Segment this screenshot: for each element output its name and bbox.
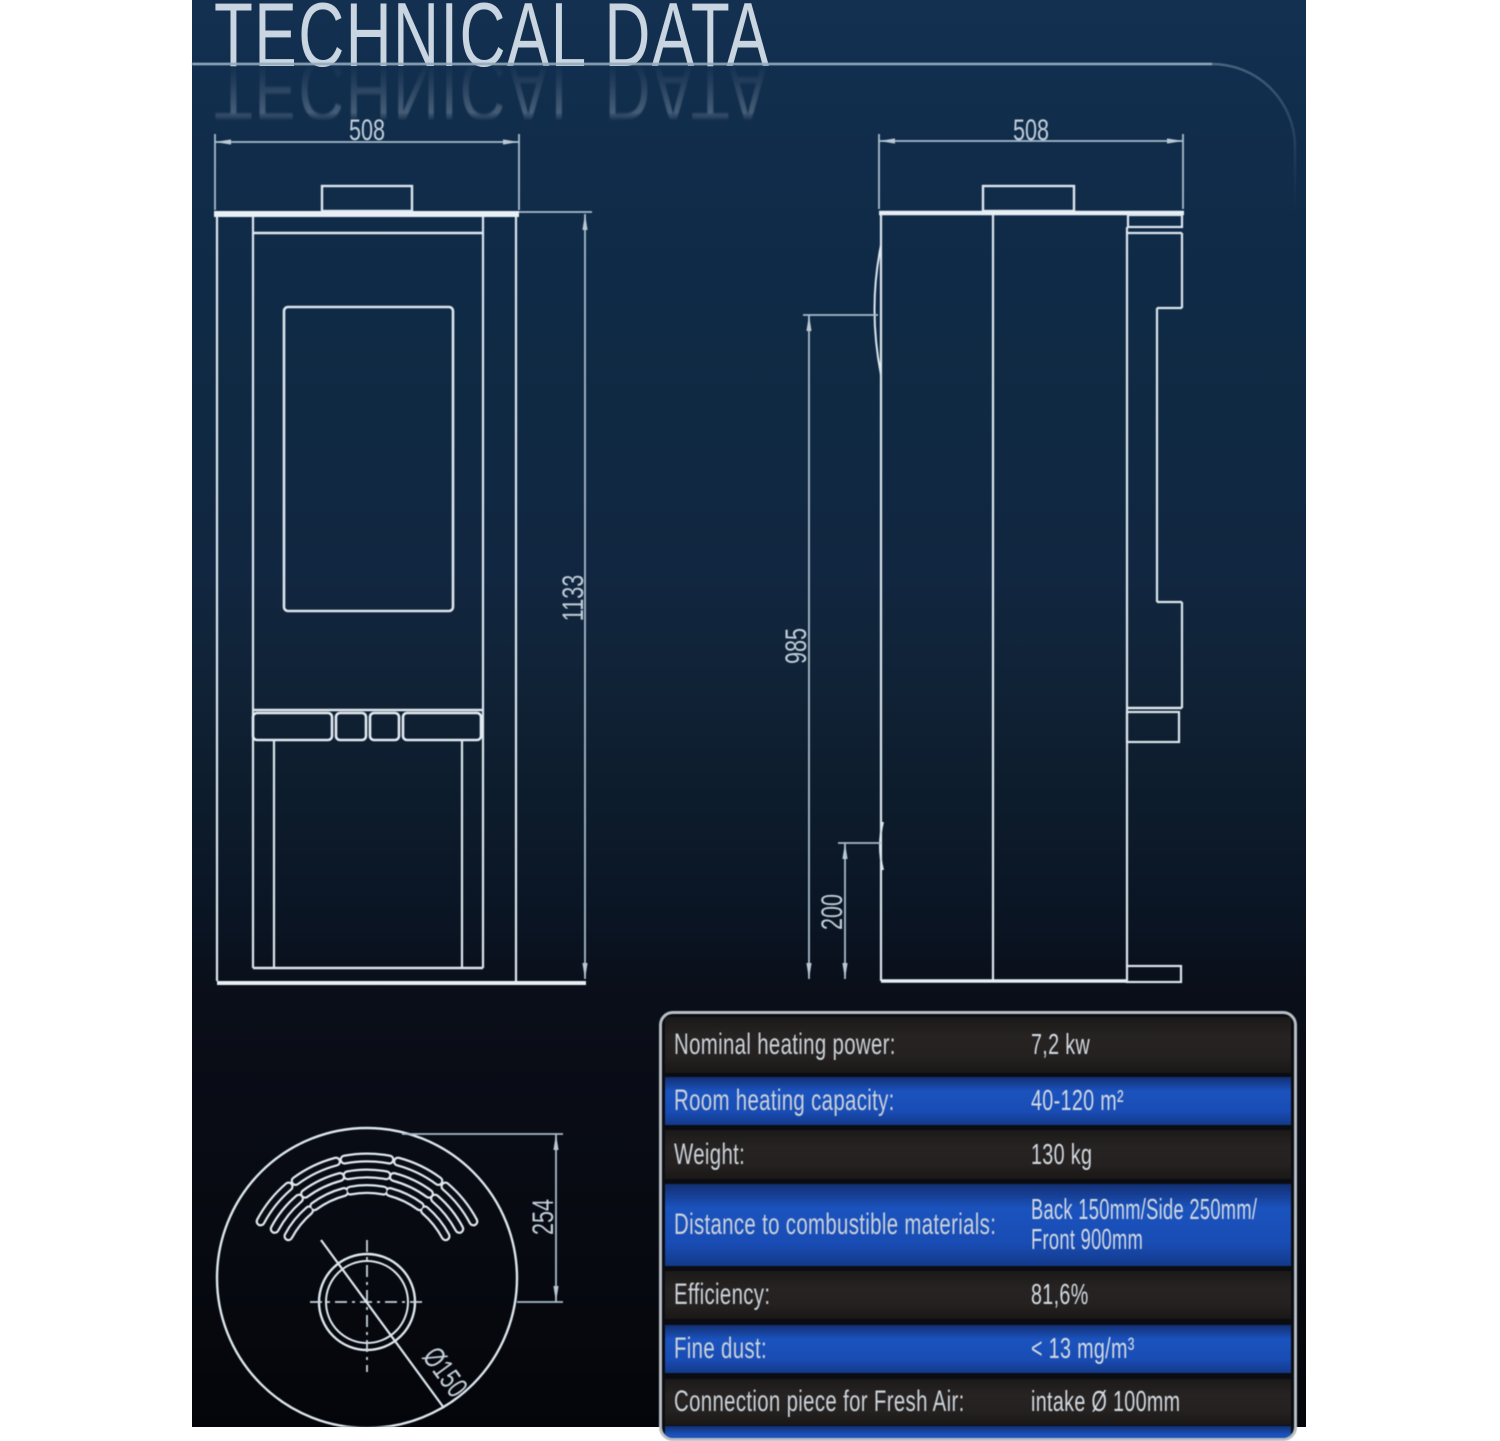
svg-text:Ø150: Ø150 [416,1340,475,1403]
svg-text:508: 508 [349,112,385,146]
svg-text:200: 200 [814,894,848,930]
svg-text:254: 254 [525,1199,559,1235]
svg-text:1133: 1133 [555,575,589,621]
svg-text:508: 508 [1013,112,1049,146]
svg-text:985: 985 [778,628,812,664]
